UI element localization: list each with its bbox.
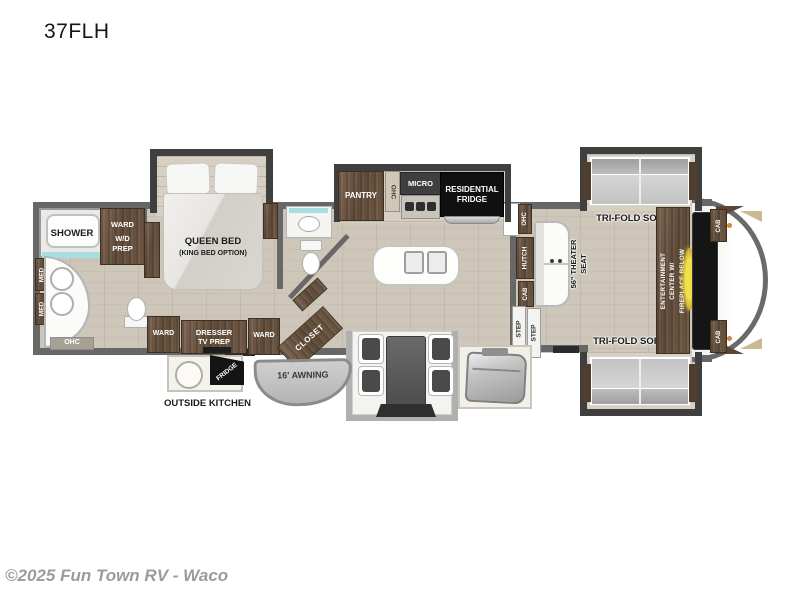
outside-fridge-label: FRIDGE [215, 361, 239, 382]
entry-ohc-cabinet: OHC [518, 204, 532, 234]
ent-label-2: CENTER W/ [668, 248, 677, 312]
shower-label: SHOWER [39, 228, 105, 240]
dinette-chair-4 [428, 366, 454, 396]
residential-fridge: RESIDENTIAL FRIDGE [440, 172, 504, 217]
bed-pillow-left [165, 162, 210, 196]
sofa-bottom-armrest-left [583, 364, 591, 402]
theater-cupholder-2 [558, 259, 562, 263]
sofa-bottom-slide-wall-bottom [580, 409, 702, 416]
sofa-top-split [639, 159, 641, 204]
dinette-chair-1-cushion [362, 338, 380, 360]
cooktop [401, 195, 440, 219]
rear-cab-top: CAB [710, 209, 727, 242]
sofa-bottom-split [639, 359, 641, 404]
dinette-platform [376, 404, 436, 417]
kitchen-slide-wall-right [505, 164, 511, 222]
theater-seat [534, 221, 570, 307]
theater-seat-label: 56" THEATER SEAT [566, 220, 592, 308]
bed-slide-wall-top [150, 149, 273, 156]
awning: 16' AWNING [254, 358, 353, 407]
copyright-text: ©2025 Fun Town RV - Waco [5, 566, 228, 586]
residential-fridge-label-1: RESIDENTIAL [445, 185, 498, 195]
bed-pillow-right [213, 162, 258, 196]
theater-label-2: SEAT [579, 240, 589, 289]
sofa-top-armrest-right [689, 162, 697, 200]
midbath-vanity [286, 206, 332, 238]
burner-3 [427, 202, 436, 211]
entry-steps-tread [472, 368, 520, 373]
midbath-sink [298, 216, 320, 232]
ent-label-1: ENTERTAINMENT [659, 248, 668, 312]
wd-prep-label-1: W/D [115, 234, 130, 243]
nightstand-right [263, 203, 278, 239]
bedroom-ward-right: WARD [248, 318, 280, 355]
sofa-top-slide-wall-top [580, 147, 702, 154]
theater-seat-split [544, 263, 568, 265]
dinette-chair-3-cushion [432, 338, 450, 360]
dresser-label: DRESSER [196, 328, 232, 337]
entry-steps-handle [482, 348, 508, 356]
dinette-chair-1 [358, 334, 384, 364]
sofa-top-armrest-left [583, 162, 591, 200]
island-sink-right [427, 251, 447, 274]
cap-light-bottom [727, 336, 732, 341]
sofa-bottom-armrest-right [689, 364, 697, 402]
pantry-cabinet: PANTRY [338, 171, 384, 221]
bath-ohc-cabinet: OHC [50, 337, 94, 350]
hutch-cabinet: HUTCH [516, 237, 534, 279]
door-baggage-living [553, 346, 579, 353]
entry-cab-cabinet: CAB [518, 281, 534, 307]
fridge-door-front [444, 216, 500, 224]
midbath-toilet-bowl [302, 252, 320, 275]
trifold-sofa-top [589, 156, 691, 206]
wd-prep-label-2: PREP [112, 244, 132, 253]
bed-slide-wall-left [150, 149, 157, 213]
vanity-sink-2 [50, 292, 74, 316]
ward-label: WARD [111, 220, 134, 229]
midbath-toilet-tank [300, 240, 322, 251]
residential-fridge-label-2: FRIDGE [457, 195, 487, 205]
bath-toilet-bowl [127, 297, 146, 321]
island-sink-left [404, 251, 424, 274]
awning-label: 16' AWNING [257, 369, 349, 382]
rear-cab-bottom: CAB [710, 320, 727, 353]
trifold-sofa-bottom [589, 356, 691, 406]
kitchen-ohc-cabinet: OHC [385, 171, 400, 212]
dinette-chair-2 [358, 366, 384, 396]
nightstand-left [144, 222, 160, 278]
outside-kitchen-label: OUTSIDE KITCHEN [150, 398, 265, 410]
cap-corner-trim-br [740, 338, 762, 349]
theater-cupholder-1 [550, 259, 554, 263]
floorplan-canvas: 37FLH ©2025 Fun Town RV - Waco SHOWER [0, 0, 800, 600]
outside-kitchen-sink [175, 361, 203, 389]
page-title: 37FLH [44, 20, 110, 44]
burner-2 [416, 202, 425, 211]
kitchen-slide-wall-top [334, 164, 511, 171]
tv-prep-label: TV PREP [198, 337, 230, 346]
dresser-tv-strip [203, 347, 231, 353]
microwave: MICRO [400, 172, 441, 195]
theater-seat-back [536, 223, 544, 305]
dinette-chair-3 [428, 334, 454, 364]
bedroom-ward-left: WARD [147, 316, 180, 353]
vanity-sink-1 [50, 267, 74, 291]
burner-1 [405, 202, 414, 211]
cap-light-top [727, 223, 732, 228]
midbath-vanity-backsplash [289, 208, 328, 213]
entry-steps [465, 351, 528, 404]
cap-corner-trim-tr [740, 211, 762, 222]
ward-wd-prep-cabinet: WARD W/D PREP [100, 208, 145, 265]
queen-bed-label: QUEEN BED [163, 236, 263, 248]
dinette-table [386, 336, 426, 406]
theater-label-1: 56" THEATER [569, 240, 579, 289]
dinette-chair-2-cushion [362, 370, 380, 392]
king-option-label: (KING BED OPTION) [156, 249, 270, 259]
dinette-chair-4-cushion [432, 370, 450, 392]
